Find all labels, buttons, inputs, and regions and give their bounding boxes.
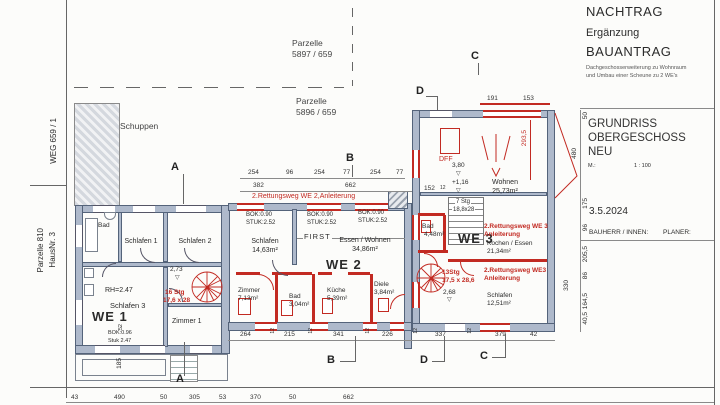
dim-330: 330	[564, 280, 571, 291]
dim-line-top	[240, 178, 405, 179]
dim-490: 490	[114, 394, 125, 401]
we1-bok-label: BOK:0.96	[108, 330, 132, 337]
dim-2935-red: 293,5	[522, 130, 529, 146]
dim-right-86: 86	[583, 272, 590, 279]
bauherr-label: BAUHERR / INNEN:	[589, 229, 648, 237]
room-area-bad-we3: 4,48m²	[424, 231, 444, 239]
section-marker-c-top: C	[471, 50, 479, 62]
drawing-title-line2: OBERGESCHOSS	[588, 132, 686, 146]
dim-152: 152	[424, 185, 435, 192]
section-marker-d-bottom: D	[420, 354, 428, 366]
ground-line	[30, 387, 714, 388]
section-leader	[505, 334, 506, 358]
boundary-line-weg	[66, 0, 67, 398]
planer-label: PLANER:	[663, 229, 691, 237]
bok-label: BOK:0.90	[307, 212, 333, 219]
dff-label: DFF	[439, 156, 453, 164]
dim-right-175: 175	[583, 198, 590, 209]
dim-53: 53	[219, 394, 226, 401]
scale-label: M.:	[588, 163, 596, 170]
we3-spiral-label-line2: 17,5 x 28,6	[442, 277, 475, 285]
section-leader	[352, 165, 353, 177]
title-block-divider-top	[580, 108, 714, 109]
drawing-title-line3: NEU	[588, 146, 612, 160]
room-area-schlafen-we3: 12,51m²	[487, 300, 511, 308]
window-red	[412, 150, 420, 178]
parzelle-810-label: Parzelle 810	[37, 228, 45, 272]
unit-label-we2: WE 2	[326, 257, 362, 273]
room-area-kueche: 5,39m²	[327, 295, 347, 303]
dff-roof-window	[440, 128, 460, 154]
dim-77a: 77	[343, 169, 350, 176]
red-partition	[312, 274, 315, 322]
room-area-diele: 3,84m²	[374, 289, 394, 297]
dim-right-405: 40,5	[583, 312, 590, 325]
room-label-essen-wohnen: Essen / Wohnen	[330, 237, 400, 245]
window-red	[237, 203, 264, 211]
window-red	[483, 110, 541, 118]
sink	[104, 212, 116, 220]
window-red	[412, 215, 420, 240]
window	[140, 345, 165, 354]
window-red	[390, 322, 404, 331]
level-symbol: ▽	[456, 187, 461, 194]
room-area-zimmer-we2: 7,13m²	[238, 295, 258, 303]
section-leader	[437, 96, 438, 110]
we3-spiral-label-line1: 13Stg	[442, 269, 460, 277]
room-label-diele: Diele	[374, 281, 389, 289]
dim-96: 96	[286, 169, 293, 176]
window	[445, 323, 465, 332]
room-label-wohnen: Wohnen	[480, 179, 530, 187]
level-symbol: ▽	[175, 274, 180, 281]
parcel-boundary-dashed-v	[352, 8, 354, 86]
project-note-line2: und Umbau einer Scheune zu 2 WE's	[586, 73, 678, 80]
schuppen-hatched-area	[74, 103, 120, 206]
dim-77b: 77	[396, 169, 403, 176]
red-partition	[418, 250, 448, 253]
red-partition	[236, 272, 260, 275]
red-partition	[275, 274, 278, 322]
door-arc	[140, 248, 155, 263]
we2-wall-schlafen	[292, 209, 297, 265]
dim-185: 185	[117, 358, 124, 369]
section-leader	[478, 63, 479, 75]
we3-rettungsweg1-line2: Anleiterung	[484, 231, 520, 239]
stuk-label: STUK:2.52	[246, 220, 275, 227]
parcel-boundary-dashed-h	[74, 87, 344, 89]
window	[133, 205, 155, 213]
hausnr-label: HausNr. 3	[49, 232, 57, 268]
bok-label: BOK:0.90	[358, 210, 384, 217]
level-symbol: ▽	[447, 296, 452, 303]
dim-right-1645: 164,5	[583, 293, 590, 309]
dim-50a: 50	[160, 394, 167, 401]
dim-50b: 50	[289, 394, 296, 401]
room-area-schlafen-we2: 14,63m²	[240, 247, 290, 255]
dim-226: 226	[382, 331, 393, 338]
window	[430, 110, 452, 118]
dim-264: 264	[240, 331, 251, 338]
chimney	[388, 191, 408, 209]
section-leader	[340, 361, 356, 362]
dim-52: 52	[119, 324, 125, 330]
section-marker-b-top: B	[346, 152, 354, 164]
daylight-rays	[473, 126, 519, 180]
window	[176, 205, 206, 213]
bauantrag-title: BAUANTRAG	[586, 44, 671, 60]
room-area-bad-we2: 3,04m²	[289, 301, 309, 309]
room-label-zimmer1: Zimmer 1	[172, 318, 202, 326]
spiral-stair-we1	[190, 270, 224, 304]
dim-662b: 662	[343, 394, 354, 401]
dim-254c: 254	[370, 169, 381, 176]
we2-rettungsweg-label: 2.Rettungsweg WE 2,Anleiterung	[252, 193, 355, 201]
section-marker-b-bottom: B	[327, 354, 335, 366]
room-area-kochen-essen: 21,34m²	[487, 248, 511, 256]
dim-sep: 12	[366, 328, 371, 334]
we3-rettungsweg1-line1: 2.Rettungsweg WE 3	[484, 223, 548, 231]
we1-wall-schlafen1-2	[163, 212, 168, 262]
weg-label: WEG 659 / 1	[50, 118, 58, 164]
red-dim-line	[480, 103, 550, 105]
dim-254a: 254	[248, 169, 259, 176]
level-116: +1,16	[452, 179, 468, 187]
room-label-schlafen2: Schlafen 2	[170, 238, 220, 246]
dim-sep: 12	[271, 328, 276, 334]
dim-254b: 254	[314, 169, 325, 176]
dim-153: 153	[523, 95, 534, 102]
room-label-schlafen-we2: Schlafen	[240, 238, 290, 246]
we3-stair-label-line2: 18,8x28	[452, 207, 475, 214]
dim-370: 370	[250, 394, 261, 401]
we3-rettungsweg2-line1: 2.Rettungsweg WE3	[484, 267, 546, 275]
stuk-label: STUK:2.52	[307, 220, 336, 227]
we1-wall-bad	[118, 212, 122, 262]
dim-382: 382	[253, 182, 264, 189]
fixture	[84, 268, 94, 278]
room-label-kueche: Küche	[327, 287, 345, 295]
dim-line-right	[580, 110, 581, 332]
door-arc	[184, 248, 199, 263]
section-marker-a-bottom: A	[176, 373, 184, 385]
red-dim-line	[530, 120, 531, 180]
we1-stair-label-line1: 16 Stg	[165, 289, 185, 297]
schuppen-label: Schuppen	[120, 121, 158, 131]
scale-value: 1 : 100	[634, 163, 651, 170]
room-label-zimmer-we2: Zimmer	[238, 287, 260, 295]
room-label-bad-we1: Bad	[98, 222, 110, 230]
dim-662a: 662	[345, 182, 356, 189]
section-leader	[444, 336, 445, 362]
dim-341: 341	[333, 331, 344, 338]
window	[75, 300, 83, 325]
section-marker-a-top: A	[171, 161, 179, 173]
terrace-inner	[82, 359, 166, 376]
window	[190, 345, 212, 354]
dim-right-50: 50	[583, 112, 590, 119]
section-marker-c-bottom: C	[480, 350, 488, 362]
parzelle-5896-line1: Parzelle	[296, 96, 327, 106]
window-red	[307, 203, 341, 211]
room-label-schlafen-we3: Schlafen	[487, 292, 512, 300]
dim-sep: 12	[440, 185, 446, 191]
dim-sep: 12	[309, 328, 314, 334]
room-label-bad-we3: Bad	[422, 223, 434, 231]
we1-stuk-label: Stuk 2.47	[108, 338, 131, 345]
sheet-right-border	[714, 0, 715, 405]
dim-sep: 12	[468, 328, 473, 334]
room-area-essen-wohnen: 34,86m²	[330, 246, 400, 254]
drawing-title-line1: GRUNDRISS	[588, 118, 657, 132]
we3-stair-label-line1: 7 Stg	[455, 199, 471, 206]
ergaenzung-title: Ergänzung	[586, 27, 639, 40]
section-leader	[183, 174, 184, 204]
dim-line-mid	[240, 191, 412, 192]
level-380: 3,80	[452, 162, 465, 170]
drawing-date: 3.5.2024	[589, 206, 628, 218]
red-partition	[370, 274, 373, 322]
fixture-red	[378, 298, 389, 312]
window	[75, 225, 83, 247]
dim-right-2055: 205,5	[583, 246, 590, 262]
section-leader	[355, 336, 356, 362]
dim-215: 215	[284, 331, 295, 338]
unit-label-we1: WE 1	[92, 309, 128, 325]
red-partition	[418, 213, 445, 216]
dim-line-outer-bottom	[66, 402, 714, 403]
fixture	[84, 284, 94, 296]
room-area-wohnen: 25,73m²	[480, 188, 530, 196]
window	[95, 345, 120, 354]
dim-sep: 12	[414, 328, 419, 334]
bok-label: BOK:0.90	[246, 212, 272, 219]
dim-191: 191	[487, 95, 498, 102]
bathtub	[85, 218, 98, 252]
section-marker-d-top: D	[416, 85, 424, 97]
room-label-bad-we2: Bad	[289, 293, 301, 301]
dim-42: 42	[530, 331, 537, 338]
floor-plan-sheet: NACHTRAG Ergänzung BAUANTRAG Dachgeschos…	[0, 0, 720, 405]
parzelle-5897-line2: 5897 / 659	[292, 49, 332, 59]
nachtrag-title: NACHTRAG	[586, 4, 663, 20]
room-label-schlafen1: Schlafen 1	[118, 238, 164, 246]
dim-43: 43	[71, 394, 78, 401]
ridge-label-first: FIRST	[303, 232, 332, 241]
title-block-divider-bottom	[580, 240, 714, 241]
section-leader	[492, 357, 506, 358]
room-label-kochen-essen: Kochen / Essen	[487, 240, 533, 248]
we1-wall-schlafen3	[163, 267, 168, 347]
we3-rettungsweg2-line2: Anleiterung	[484, 275, 520, 283]
stuk-label: STUK:2.52	[358, 218, 387, 225]
dim-273: 2,73	[170, 266, 183, 274]
dim-480: 480	[572, 148, 579, 159]
section-leader	[184, 342, 185, 376]
dim-305: 305	[189, 394, 200, 401]
boundary-tick	[30, 185, 66, 186]
door-arc-red	[460, 262, 474, 276]
we1-stair-label-line2: 17,6 x 28	[163, 297, 190, 305]
parzelle-5896-line2: 5896 / 659	[296, 107, 336, 117]
parzelle-5897-line1: Parzelle	[292, 38, 323, 48]
door-arc-red	[258, 274, 274, 290]
level-symbol: ▽	[456, 170, 461, 177]
room-height-label: RH=2.47	[105, 287, 133, 295]
project-note-line1: Dachgeschosserweiterung zu Wohnraum	[586, 65, 686, 72]
dim-right-96: 96	[583, 224, 590, 231]
